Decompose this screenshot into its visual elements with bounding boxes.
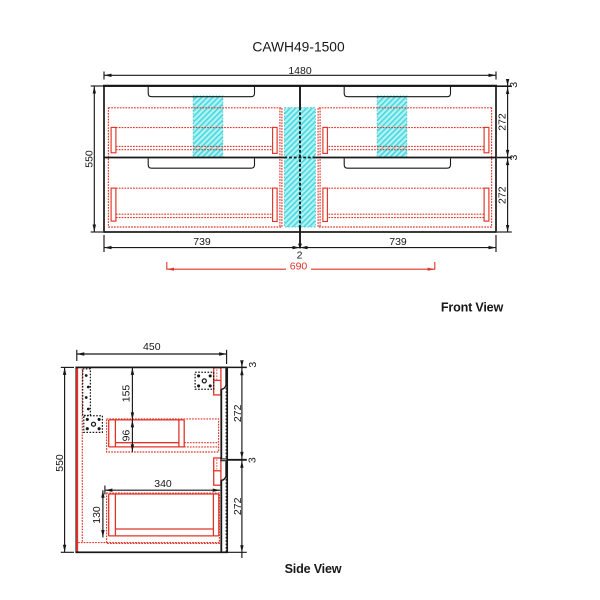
svg-text:272: 272 bbox=[232, 497, 244, 515]
svg-text:3: 3 bbox=[247, 362, 259, 368]
svg-text:272: 272 bbox=[496, 186, 508, 204]
svg-text:690: 690 bbox=[290, 261, 308, 273]
svg-text:3: 3 bbox=[246, 457, 258, 463]
svg-text:2: 2 bbox=[297, 249, 303, 261]
svg-text:450: 450 bbox=[143, 341, 161, 353]
svg-text:Side View: Side View bbox=[285, 562, 342, 576]
svg-text:739: 739 bbox=[389, 236, 407, 248]
svg-text:739: 739 bbox=[193, 236, 211, 248]
svg-text:3: 3 bbox=[508, 82, 520, 88]
svg-text:155: 155 bbox=[121, 385, 133, 403]
svg-text:272: 272 bbox=[496, 113, 508, 131]
svg-text:96: 96 bbox=[121, 430, 133, 442]
svg-text:272: 272 bbox=[232, 404, 244, 422]
svg-text:550: 550 bbox=[54, 454, 66, 472]
svg-text:Front View: Front View bbox=[441, 301, 504, 315]
svg-text:1480: 1480 bbox=[288, 65, 312, 77]
svg-text:CAWH49-1500: CAWH49-1500 bbox=[252, 40, 345, 55]
svg-text:340: 340 bbox=[154, 478, 172, 490]
svg-text:3: 3 bbox=[508, 155, 520, 161]
svg-text:550: 550 bbox=[84, 150, 96, 168]
svg-text:130: 130 bbox=[91, 506, 103, 524]
